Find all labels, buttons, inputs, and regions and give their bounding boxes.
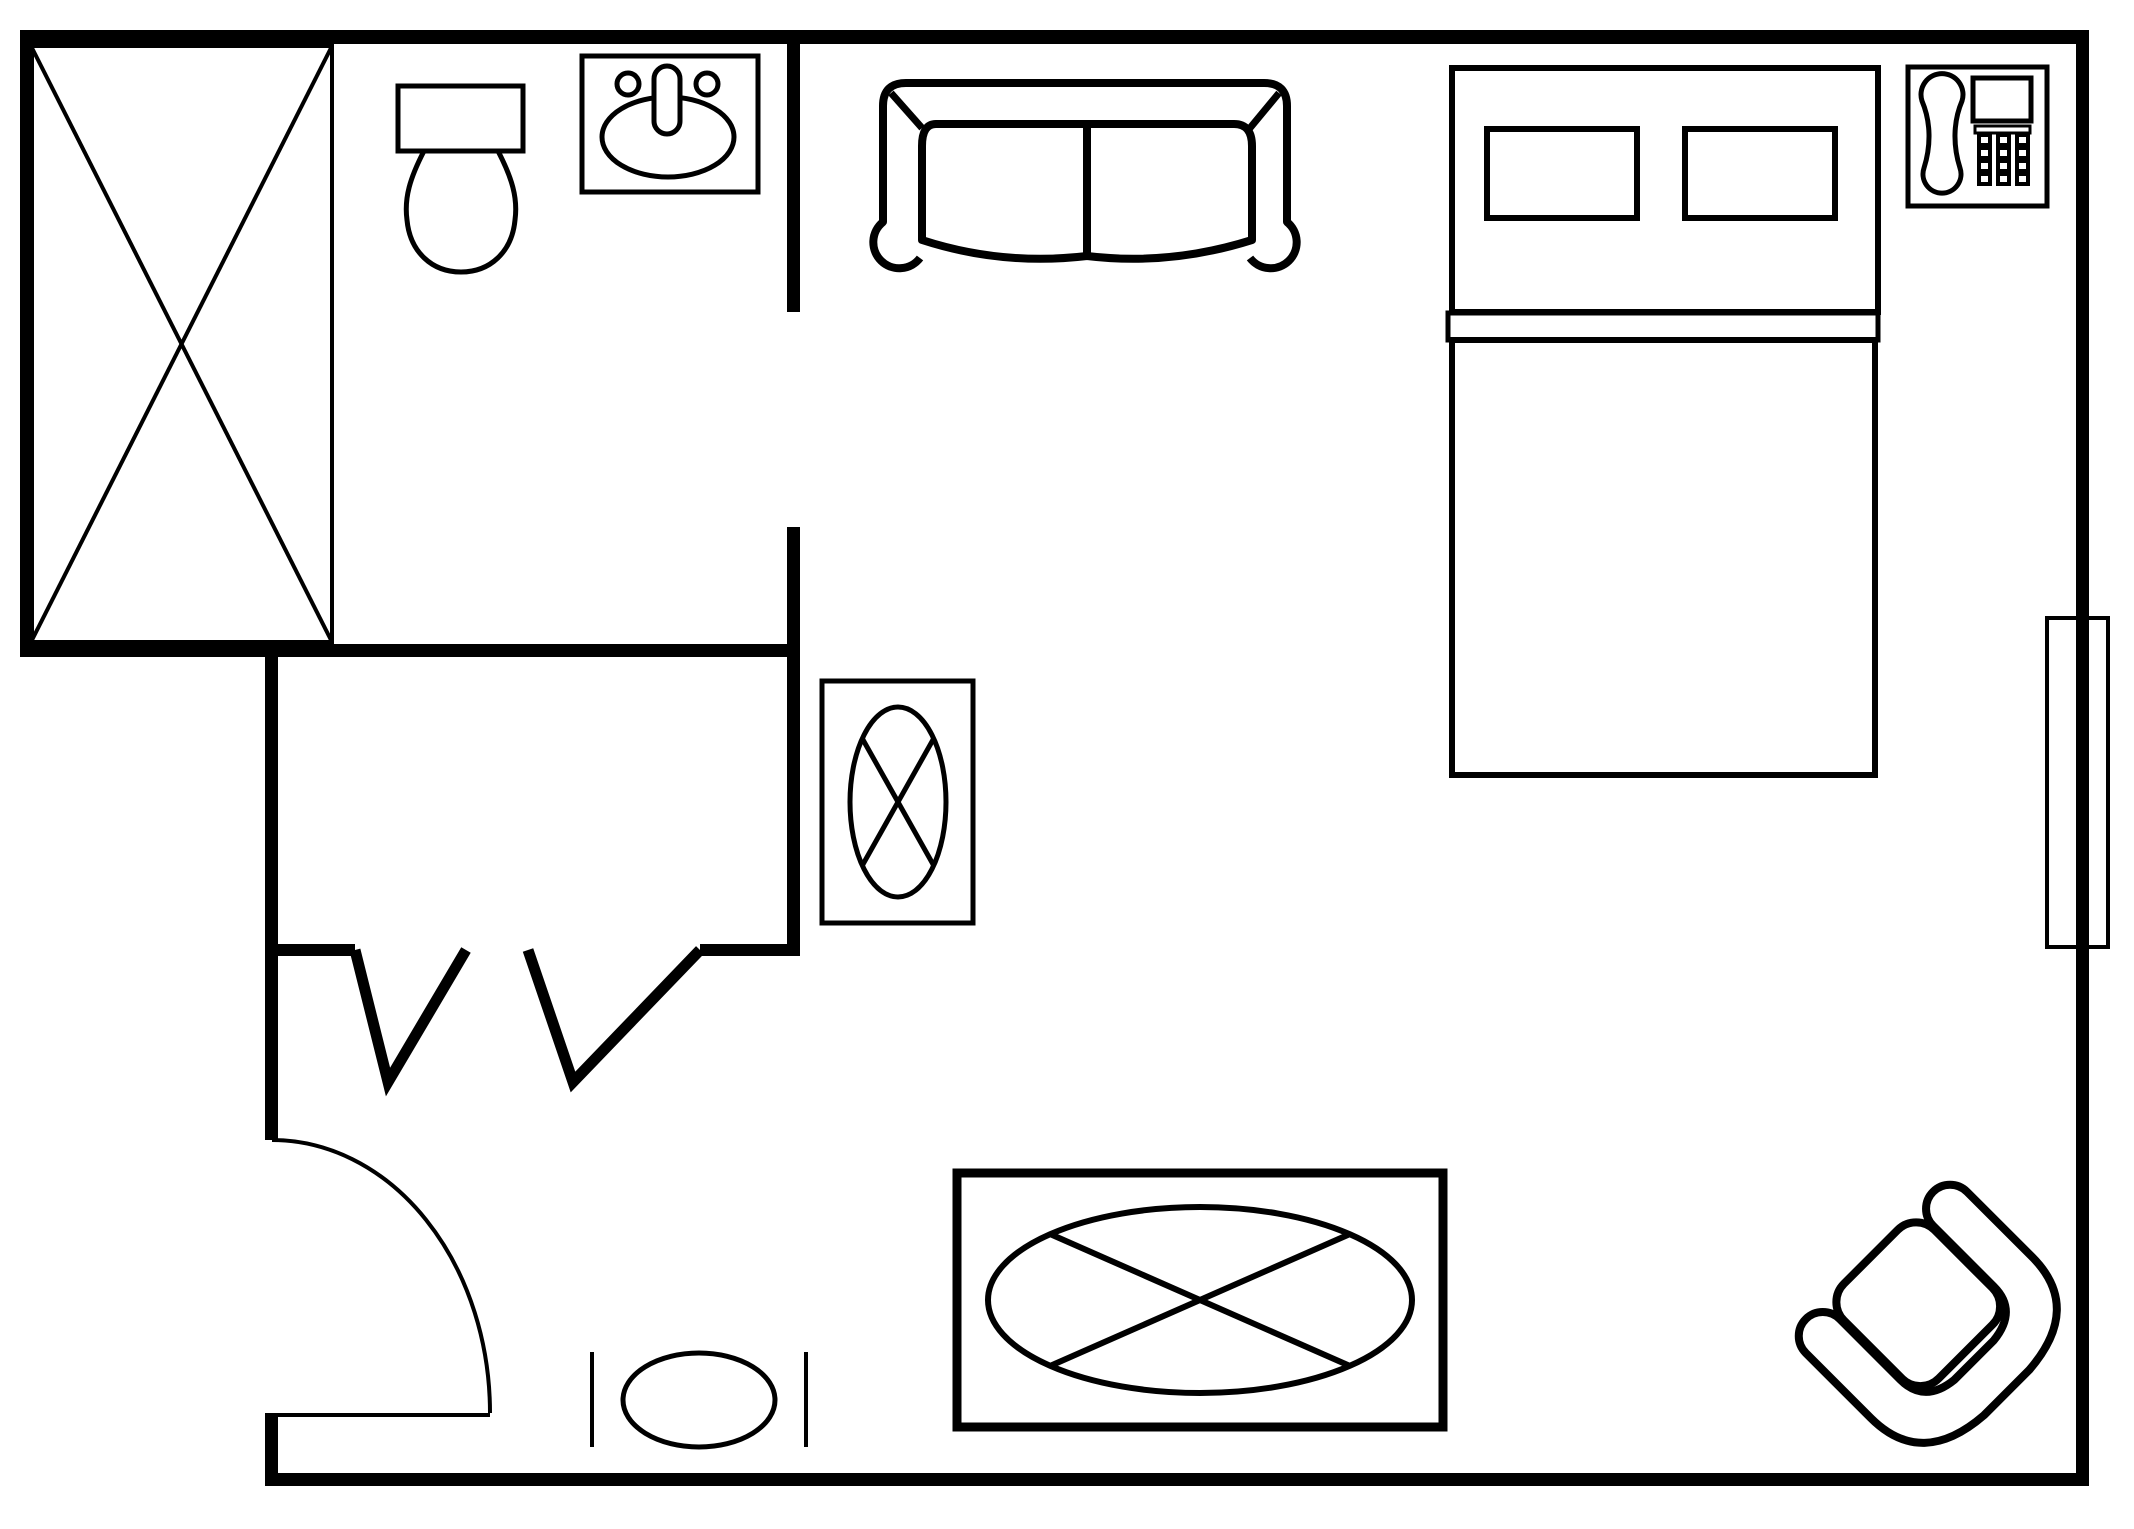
dining-table xyxy=(957,1173,1443,1427)
sink-handle-right xyxy=(696,73,718,95)
toilet-tank xyxy=(398,86,523,151)
toilet xyxy=(398,86,523,272)
entry-door-swing-arc xyxy=(272,1140,490,1413)
wall-right xyxy=(2076,30,2089,1486)
wall-closet-left xyxy=(265,644,278,1140)
bed-pillow-right xyxy=(1685,129,1835,218)
bed-mattress xyxy=(1452,340,1875,775)
stool xyxy=(592,1352,806,1447)
sink-handle-left xyxy=(617,73,639,95)
wall-inner-lower xyxy=(787,527,800,954)
sink xyxy=(582,56,758,192)
telephone xyxy=(1908,67,2047,206)
floor-plan-drawing xyxy=(0,0,2134,1529)
wall-bathroom-bottom xyxy=(20,644,800,657)
wall-inner-upper xyxy=(787,30,800,312)
wall-bottom xyxy=(265,1473,2089,1486)
bifold-door-right xyxy=(528,950,700,1082)
wall-top xyxy=(20,30,2089,44)
telephone-handset xyxy=(1921,74,1963,193)
wall-closet-stub-left xyxy=(265,944,355,956)
stool-seat xyxy=(623,1353,775,1447)
floor-plan-page xyxy=(0,0,2134,1529)
entry-door xyxy=(272,1140,490,1415)
closet-bifold-doors xyxy=(355,950,700,1082)
bed-pillow-left xyxy=(1487,129,1637,218)
bed-sheet-fold xyxy=(1448,313,1878,340)
bed xyxy=(1448,68,1878,775)
bathtub xyxy=(31,46,332,642)
wall-entry-stub xyxy=(265,1413,278,1486)
wall-closet-stub-right xyxy=(700,944,800,956)
armchair xyxy=(1789,1175,2087,1473)
sink-faucet xyxy=(654,66,680,134)
bifold-door-left xyxy=(355,950,466,1082)
toilet-bowl xyxy=(406,151,516,272)
sofa xyxy=(873,83,1296,268)
mirror-table xyxy=(822,681,973,923)
